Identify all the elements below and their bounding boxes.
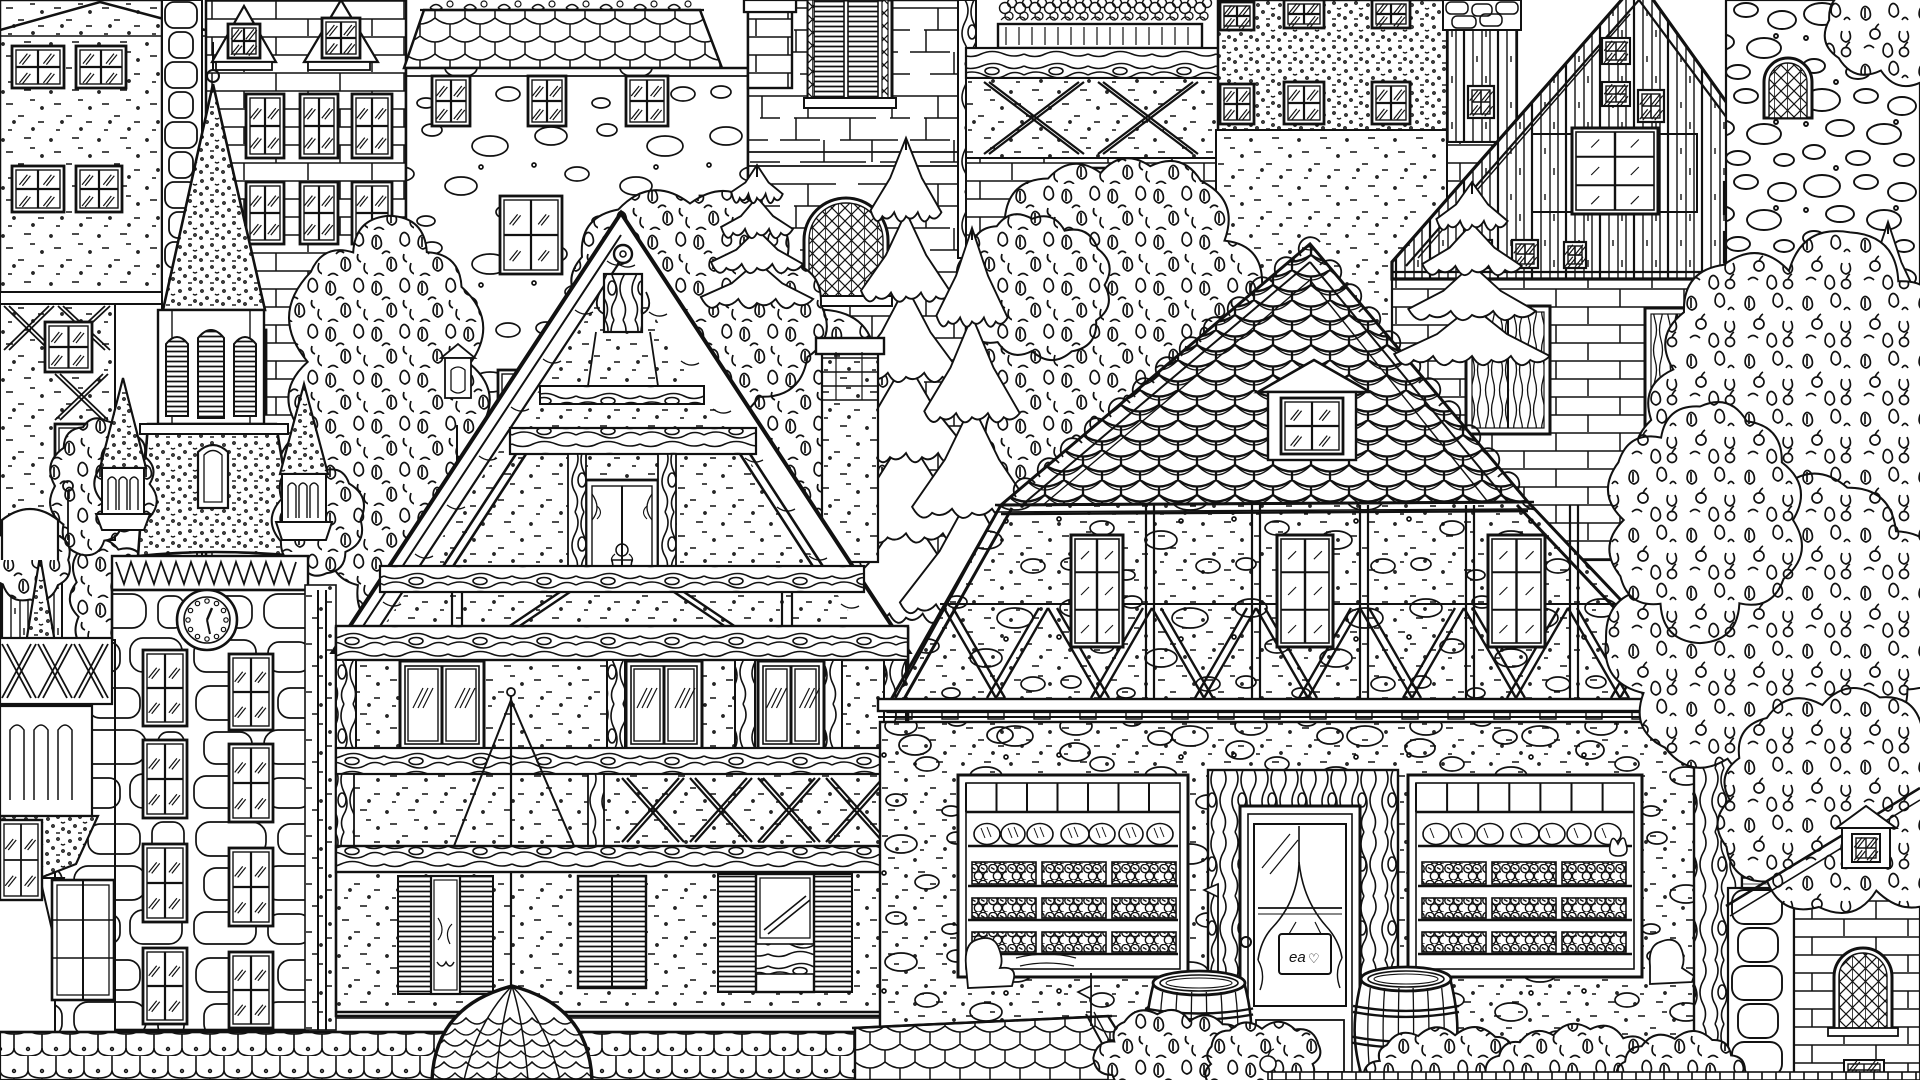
svg-text:♡: ♡ [1308, 951, 1320, 966]
svg-text:ea: ea [1289, 949, 1306, 966]
